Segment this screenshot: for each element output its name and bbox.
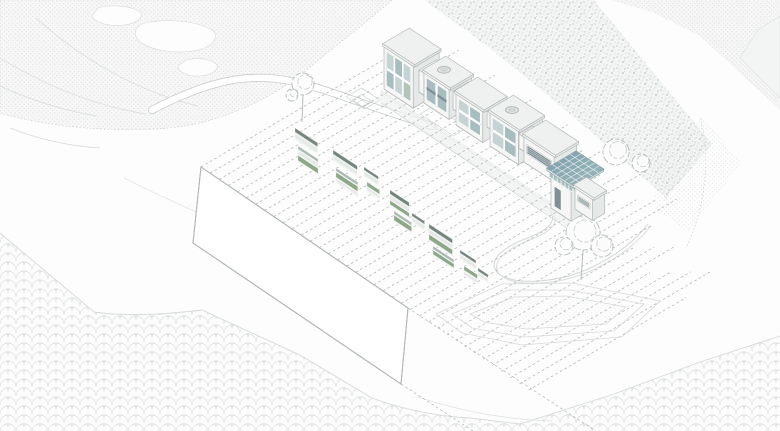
diagram-stage	[0, 0, 780, 431]
axonometric-site-diagram	[0, 0, 780, 431]
tree-sketch	[603, 139, 629, 165]
terrain-clearing	[92, 6, 141, 26]
pavilion-door	[554, 186, 561, 210]
tree-sketch	[286, 89, 298, 101]
tree-sketch	[632, 154, 650, 172]
terrain-clearing	[178, 59, 217, 77]
tree-sketch	[555, 237, 573, 255]
tree-sketch	[591, 235, 613, 257]
